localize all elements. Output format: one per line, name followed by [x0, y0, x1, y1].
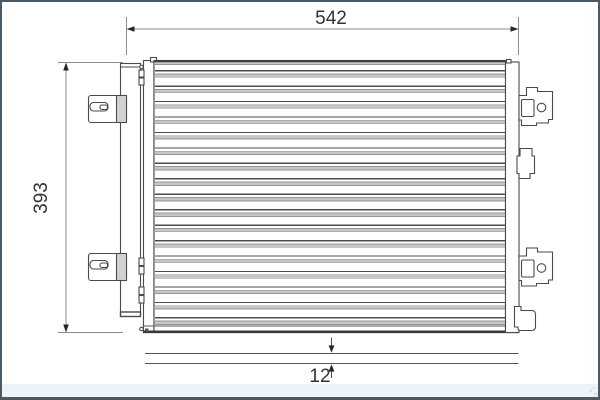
fin-band-edge [155, 274, 505, 275]
tube-line [155, 225, 505, 226]
dim-depth-arrow-down [329, 345, 335, 352]
dim-depth-value: 12 [309, 366, 330, 387]
fin-band-edge [155, 201, 505, 202]
right-header [506, 60, 520, 333]
tube-line [155, 85, 505, 86]
fin-band-edge [155, 139, 505, 140]
fin-band-edge [155, 108, 505, 109]
fin-band-edge [155, 278, 505, 279]
tube-line [155, 178, 505, 179]
dim-width-arrow-left [127, 26, 135, 32]
dim-width-arrow-right [511, 26, 519, 32]
condenser-drawing: 542 393 12 [0, 0, 600, 400]
condenser [89, 58, 553, 333]
bracket-square-hole [522, 260, 535, 277]
tube-line [155, 70, 505, 71]
header-clip [139, 78, 144, 85]
watermark-dot [593, 387, 596, 390]
watermark-dot [594, 393, 597, 396]
header-pin-top [140, 65, 144, 69]
dim-height-arrow-top [63, 63, 69, 71]
fin-band-edge [155, 123, 505, 124]
bracket-slot-step [100, 263, 108, 268]
fitting-block [515, 307, 536, 331]
header-pin-bottom [140, 327, 144, 331]
bracket-round-hole [537, 103, 546, 112]
fin-band-edge [155, 182, 505, 183]
header-clip [139, 267, 144, 275]
dim-height-value: 393 [31, 182, 52, 214]
fin-band-edge [155, 135, 505, 136]
fin-band-edge [155, 166, 505, 167]
tube-line [155, 302, 505, 303]
header-clip [139, 296, 144, 304]
fin-band-edge [155, 151, 505, 152]
fin-band-edge [155, 324, 505, 325]
bracket-shade-strip [117, 254, 127, 281]
fin-band-edge [155, 92, 505, 93]
tube-line [155, 271, 505, 272]
tube-line [155, 255, 505, 256]
page-border-top [0, 0, 600, 2]
fin-band-edge [155, 216, 505, 217]
fin-band-edge [155, 262, 505, 263]
dim-width: 542 [127, 8, 519, 55]
fin-band-edge [155, 104, 505, 105]
fin-band-edge [155, 231, 505, 232]
header-clip [139, 258, 144, 266]
drawing-canvas: 542 393 12 [0, 0, 600, 400]
bracket-left-bottom [89, 254, 127, 281]
fin-band-edge [155, 305, 505, 306]
dim-depth: 12 [309, 338, 334, 388]
header-clip [139, 70, 144, 77]
fin-band-edge [155, 213, 505, 214]
bracket-slot-step [100, 105, 108, 110]
bracket-right-bottom [519, 248, 553, 286]
tube-line [155, 317, 505, 318]
core [143, 61, 519, 333]
fin-band-edge [155, 89, 505, 90]
bracket-round-hole [537, 264, 546, 273]
tube-line [155, 132, 505, 133]
fin-band-edge [155, 185, 505, 186]
bracket-square-hole [522, 100, 535, 117]
fin-band-edge [155, 120, 505, 121]
bottom-corner-mark-left [145, 329, 149, 332]
tube-line [155, 194, 505, 195]
fin-band-edge [155, 290, 505, 291]
fin-band-edge [155, 259, 505, 260]
fin-band-edge [155, 154, 505, 155]
fitting-right-middle [517, 149, 535, 179]
header-clip [139, 287, 144, 295]
left-header-plate [144, 61, 155, 333]
footer-strip [2, 384, 598, 397]
fitting-block [517, 149, 535, 179]
fin-band-edge [155, 228, 505, 229]
dim-width-value: 542 [315, 8, 347, 29]
fin-band-edge [155, 74, 505, 75]
fin-band-edge [155, 247, 505, 248]
bracket-left-top [89, 96, 127, 123]
tube-line [155, 240, 505, 241]
bracket-right-top [519, 88, 553, 126]
fin-band-edge [155, 309, 505, 310]
side-view [145, 354, 519, 364]
fitting-right-bottom [515, 307, 536, 331]
watermark-dot [589, 390, 592, 393]
fin-band-edge [155, 243, 505, 244]
dim-height-arrow-bottom [63, 325, 69, 333]
tube-line [155, 147, 505, 148]
fin-band-edge [155, 64, 505, 65]
tube-line [155, 101, 505, 102]
fin-band-edge [155, 293, 505, 294]
fin-band-edge [155, 321, 505, 322]
tube-line [155, 163, 505, 164]
tube-line [155, 116, 505, 117]
tube-line [155, 286, 505, 287]
bracket-shade-strip [117, 96, 127, 123]
page-border-left [0, 0, 2, 400]
fin-band-edge [155, 197, 505, 198]
tube-line [155, 209, 505, 210]
receiver-drier-bottom-cap [121, 312, 141, 317]
fin-band-edge [155, 170, 505, 171]
right-header-top-tab [507, 60, 512, 64]
right-header-plate [506, 62, 520, 333]
fin-band-edge [155, 77, 505, 78]
